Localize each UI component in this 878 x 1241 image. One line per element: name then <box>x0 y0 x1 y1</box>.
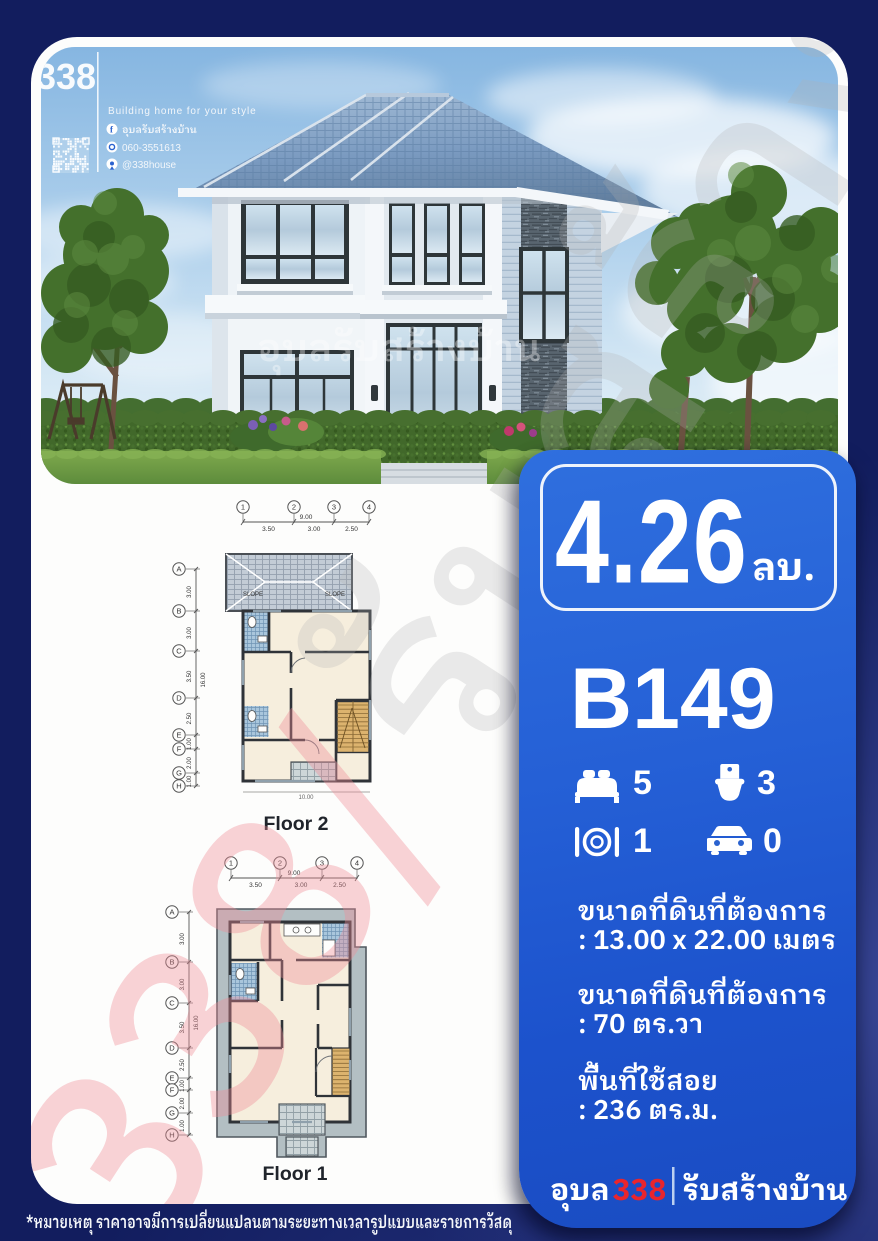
svg-text:D: D <box>176 694 182 703</box>
svg-text:1.00: 1.00 <box>187 775 193 787</box>
svg-text:16.00: 16.00 <box>201 672 207 688</box>
svg-text:4: 4 <box>367 503 371 512</box>
svg-text:1: 1 <box>229 859 233 868</box>
svg-text:Floor 2: Floor 2 <box>263 813 328 835</box>
svg-text:F: F <box>177 745 182 754</box>
svg-text:C: C <box>176 647 182 656</box>
svg-text:9.00: 9.00 <box>300 514 313 521</box>
svg-text:@338house: @338house <box>122 160 177 171</box>
svg-text:2.50: 2.50 <box>180 1059 186 1071</box>
svg-text:G: G <box>176 769 182 778</box>
svg-text:SLOPE: SLOPE <box>243 592 263 598</box>
svg-text:2.50: 2.50 <box>333 882 346 889</box>
svg-text:A: A <box>169 908 174 917</box>
svg-text:E: E <box>169 1074 174 1083</box>
svg-text:3: 3 <box>332 503 336 512</box>
svg-text:3.50: 3.50 <box>262 526 275 533</box>
svg-text:Floor 1: Floor 1 <box>262 1163 327 1185</box>
svg-text:2.00: 2.00 <box>180 1097 186 1109</box>
svg-text:B: B <box>169 958 174 967</box>
svg-text:2.50: 2.50 <box>345 526 358 533</box>
svg-text:H: H <box>176 782 181 791</box>
svg-text:1.00: 1.00 <box>180 1080 186 1092</box>
svg-text:G: G <box>169 1109 175 1118</box>
svg-text:4: 4 <box>355 859 359 868</box>
svg-text:2: 2 <box>278 859 282 868</box>
svg-text:F: F <box>170 1086 175 1095</box>
svg-text:2: 2 <box>292 503 296 512</box>
svg-text:3.00: 3.00 <box>308 526 321 533</box>
svg-text:10.00: 10.00 <box>298 795 314 801</box>
svg-text:C: C <box>169 999 175 1008</box>
svg-text:16.00: 16.00 <box>194 1015 200 1031</box>
svg-text:3.00: 3.00 <box>187 627 193 639</box>
svg-text:3: 3 <box>320 859 324 868</box>
svg-text:B: B <box>176 607 181 616</box>
svg-text:3.00: 3.00 <box>295 882 308 889</box>
svg-text:3.50: 3.50 <box>187 670 193 682</box>
svg-text:3.00: 3.00 <box>180 933 186 945</box>
svg-text:2.00: 2.00 <box>187 757 193 769</box>
svg-text:1.00: 1.00 <box>187 738 193 750</box>
svg-text:2.50: 2.50 <box>187 712 193 724</box>
svg-text:SLOPE: SLOPE <box>325 592 345 598</box>
svg-text:A: A <box>176 565 181 574</box>
svg-text:1: 1 <box>241 503 245 512</box>
svg-text:3.00: 3.00 <box>180 978 186 990</box>
svg-text:060-3551613: 060-3551613 <box>122 143 181 154</box>
svg-text:3.00: 3.00 <box>187 586 193 598</box>
svg-text:3.50: 3.50 <box>249 882 262 889</box>
svg-text:Building home for your style: Building home for your style <box>108 106 257 117</box>
svg-text:H: H <box>169 1131 174 1140</box>
svg-text:9.00: 9.00 <box>288 870 301 877</box>
svg-text:D: D <box>169 1044 175 1053</box>
svg-text:3.50: 3.50 <box>180 1021 186 1033</box>
svg-text:338: 338 <box>41 56 96 97</box>
svg-text:E: E <box>176 731 181 740</box>
svg-text:1.00: 1.00 <box>180 1120 186 1132</box>
